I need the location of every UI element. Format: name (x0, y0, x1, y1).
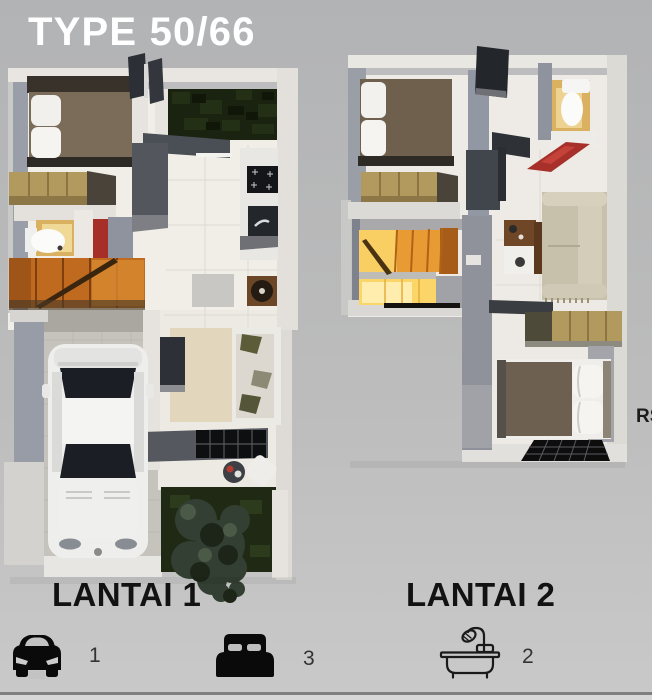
svg-text:RS: RS (636, 406, 652, 427)
svg-text:LANTAI 1: LANTAI 1 (52, 576, 201, 613)
svg-text:TYPE 50/66: TYPE 50/66 (28, 10, 256, 54)
svg-text:3: 3 (303, 647, 315, 670)
svg-text:1: 1 (89, 644, 101, 667)
svg-text:LANTAI 2: LANTAI 2 (406, 576, 555, 613)
svg-text:2: 2 (522, 645, 534, 668)
